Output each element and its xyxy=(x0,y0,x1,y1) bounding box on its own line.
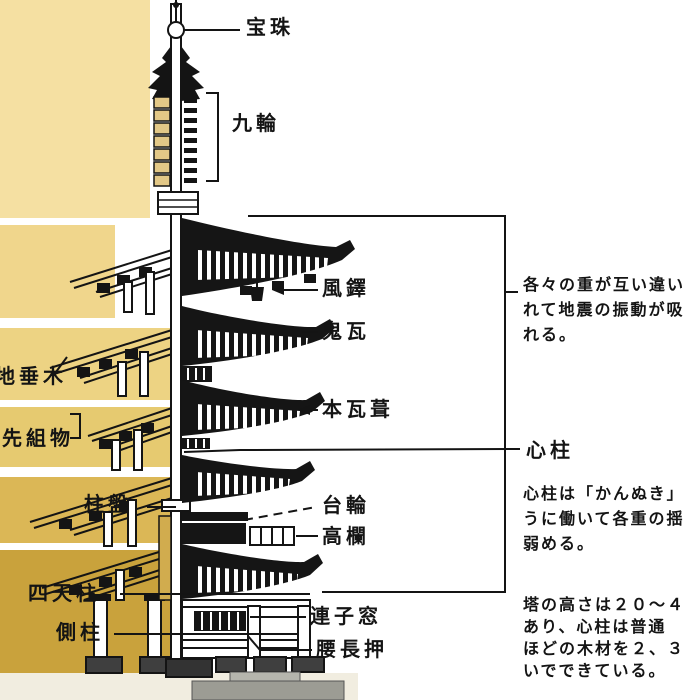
label-sakigumimono: 先組物 xyxy=(2,428,74,448)
note-height: 塔の高さは２０～４ あり、心柱は普通 ほどの木材を２、３ いでできている。 xyxy=(523,594,700,682)
kurin-bracket xyxy=(206,93,218,181)
suien-ornament-right xyxy=(181,46,204,101)
daiwa-beam xyxy=(182,512,248,521)
wind-bell xyxy=(250,287,264,301)
label-chuban: 柱盤 xyxy=(84,494,132,514)
label-shitenbashira: 四天柱 xyxy=(28,583,100,603)
spire-tip xyxy=(173,2,179,8)
label-renjimado: 連子窓 xyxy=(310,606,382,626)
label-gawabashira: 側柱 xyxy=(56,622,104,642)
daiwa-pointer xyxy=(244,507,316,520)
label-onigawara: 鬼瓦 xyxy=(322,321,370,341)
gold-strut xyxy=(159,516,171,600)
shinbashira-pointer xyxy=(184,449,520,452)
platform xyxy=(192,681,344,700)
label-hongawarabuki: 本瓦葺 xyxy=(322,399,394,419)
sacred-jewel xyxy=(168,22,184,38)
label-koshinageshi: 腰長押 xyxy=(316,639,388,659)
note-shinbashira-role: 心柱は「かんぬき」 うに働いて各重の揺 弱める。 xyxy=(523,481,700,556)
central-pillar xyxy=(171,4,181,664)
label-koran: 高欄 xyxy=(322,526,370,546)
pagoda-structure-diagram: { "labels": { "hoju": "宝珠", "kurin": "九輪… xyxy=(0,0,700,700)
label-futaku: 風鐸 xyxy=(322,278,370,298)
nine-rings-right xyxy=(184,98,197,183)
inner-column xyxy=(148,600,161,658)
band-4 xyxy=(0,225,115,318)
label-shinbashira: 心柱 xyxy=(526,440,574,460)
center-foundation-stone xyxy=(166,659,212,677)
label-kurin: 九輪 xyxy=(232,113,280,133)
band-5 xyxy=(0,0,150,218)
nine-rings-left xyxy=(154,97,170,186)
suien-ornament-left xyxy=(148,46,171,101)
label-jidaruki: 地垂木 xyxy=(0,366,67,386)
label-daiwa: 台輪 xyxy=(322,495,370,515)
label-hoju: 宝珠 xyxy=(246,17,294,37)
spire-base xyxy=(158,192,198,214)
note-sway: 各々の重が互い違い れて地震の振動が吸 れる。 xyxy=(523,272,700,347)
band-0 xyxy=(0,550,172,673)
